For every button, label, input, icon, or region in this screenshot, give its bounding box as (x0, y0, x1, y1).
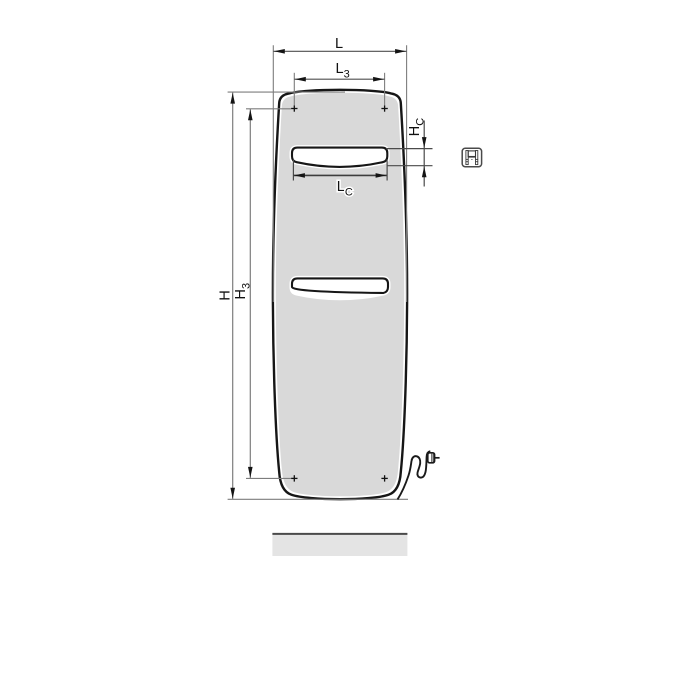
svg-text:L: L (335, 36, 343, 52)
svg-text:L3: L3 (336, 61, 350, 81)
svg-text:H: H (218, 290, 234, 300)
svg-text:HC: HC (407, 118, 427, 136)
svg-text:H3: H3 (233, 283, 253, 300)
